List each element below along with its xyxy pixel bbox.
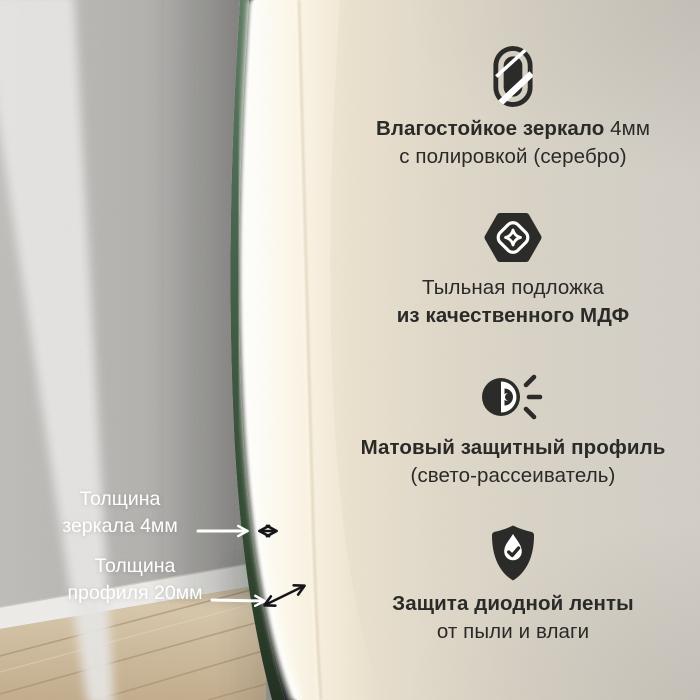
feature-line-1: Матовый защитный профиль [361,434,666,462]
feature-mdf-backing: Тыльная подложка из качественного МДФ [346,210,680,330]
measurement-text: Толщина [30,553,240,580]
feature-line-2: от пыли и влаги [392,618,633,646]
feature-diffuser-profile: Матовый защитный профиль (свето-рассеива… [346,373,680,490]
feature-led-protection: Защита диодной ленты от пыли и влаги [346,524,680,646]
light-diffuser-icon [481,373,545,421]
feature-text: Защита диодной ленты от пыли и влаги [392,590,633,646]
measurement-label-mirror-thickness: Толщина зеркала 4мм [15,486,225,540]
feature-line-1: Тыльная подложка [397,274,630,302]
feature-line-2: с полировкой (серебро) [376,143,650,171]
feature-text: Тыльная подложка из качественного МДФ [397,274,630,330]
measurement-text: профиля 20мм [30,580,240,607]
product-infographic: Толщина зеркала 4мм Толщина профиля 20мм… [0,0,700,700]
shield-check-icon [490,524,536,582]
measurement-text: зеркала 4мм [15,513,225,540]
mirror-icon [493,46,533,107]
measurement-label-profile-thickness: Толщина профиля 20мм [30,553,240,607]
feature-line-1: Защита диодной ленты [392,590,633,618]
feature-mirror: Влагостойкое зеркало 4мм с полировкой (с… [346,46,680,171]
feature-line-2: из качественного МДФ [397,302,630,330]
feature-text: Влагостойкое зеркало 4мм с полировкой (с… [376,115,650,171]
feature-line-2: (свето-рассеиватель) [361,462,666,490]
measurement-text: Толщина [15,486,225,513]
feature-line-1: Влагостойкое зеркало 4мм [376,115,650,143]
feature-text: Матовый защитный профиль (свето-рассеива… [361,434,666,490]
mdf-backing-icon [482,210,544,265]
